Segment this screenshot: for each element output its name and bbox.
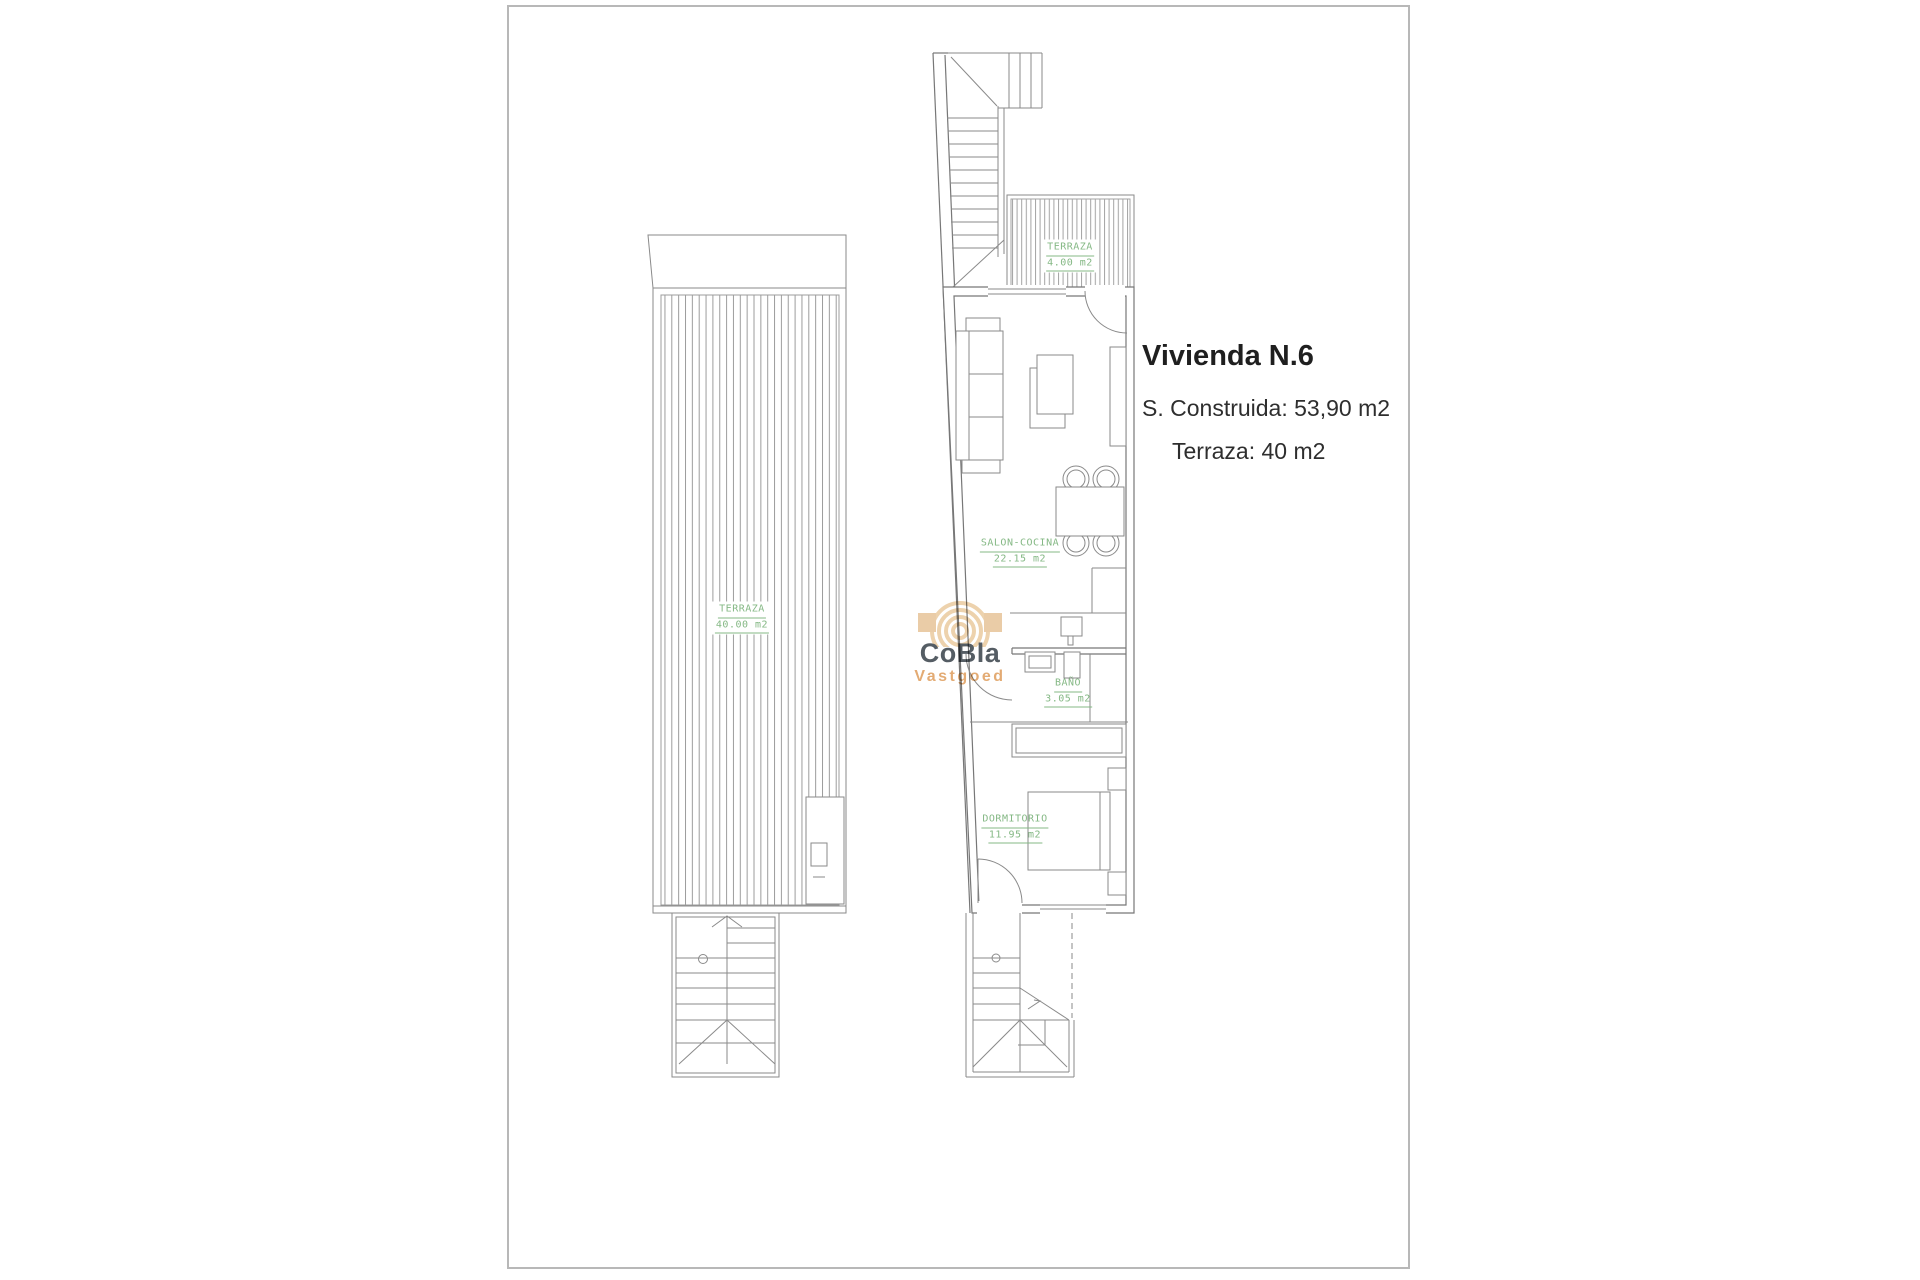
lower-staircase <box>966 913 1074 1077</box>
left-terrace-structure <box>648 235 846 913</box>
logo-brand: CoBla <box>905 640 1015 667</box>
room-label-dormitorio: DORMITORIO 11.95 m2 <box>978 812 1051 845</box>
built-area-text: S. Construida: 53,90 m2 <box>1142 395 1390 422</box>
room-label-salon: SALON-COCINA 22.15 m2 <box>977 536 1063 569</box>
room-name: TERRAZA <box>718 603 766 619</box>
cabinet <box>1110 347 1126 446</box>
room-area: 11.95 m2 <box>988 828 1042 844</box>
room-area: 22.15 m2 <box>993 552 1047 568</box>
watermark-logo: CoBla Vastgoed <box>905 601 1015 686</box>
left-staircase <box>672 913 779 1077</box>
room-name: SALON-COCINA <box>980 537 1060 553</box>
unit-title: Vivienda N.6 <box>1142 340 1390 373</box>
room-label-bano: BAÑO 3.05 m2 <box>1041 676 1095 709</box>
room-area: 40.00 m2 <box>715 618 769 634</box>
room-name: BAÑO <box>1054 677 1082 693</box>
room-area: 4.00 m2 <box>1046 256 1094 272</box>
room-area: 3.05 m2 <box>1044 692 1092 708</box>
sofa <box>956 318 1003 473</box>
room-label-terraza-top: TERRAZA 4.00 m2 <box>1043 240 1097 273</box>
info-block: Vivienda N.6 S. Construida: 53,90 m2 Ter… <box>1142 340 1390 481</box>
room-label-terraza-left: TERRAZA 40.00 m2 <box>712 602 772 635</box>
room-name: TERRAZA <box>1046 241 1094 257</box>
room-name: DORMITORIO <box>981 813 1048 829</box>
logo-tagline: Vastgoed <box>905 668 1015 686</box>
floorplan-page: TERRAZA 40.00 m2 TERRAZA 4.00 m2 SALON-C… <box>0 0 1920 1280</box>
terrace-area-text: Terraza: 40 m2 <box>1142 438 1390 465</box>
